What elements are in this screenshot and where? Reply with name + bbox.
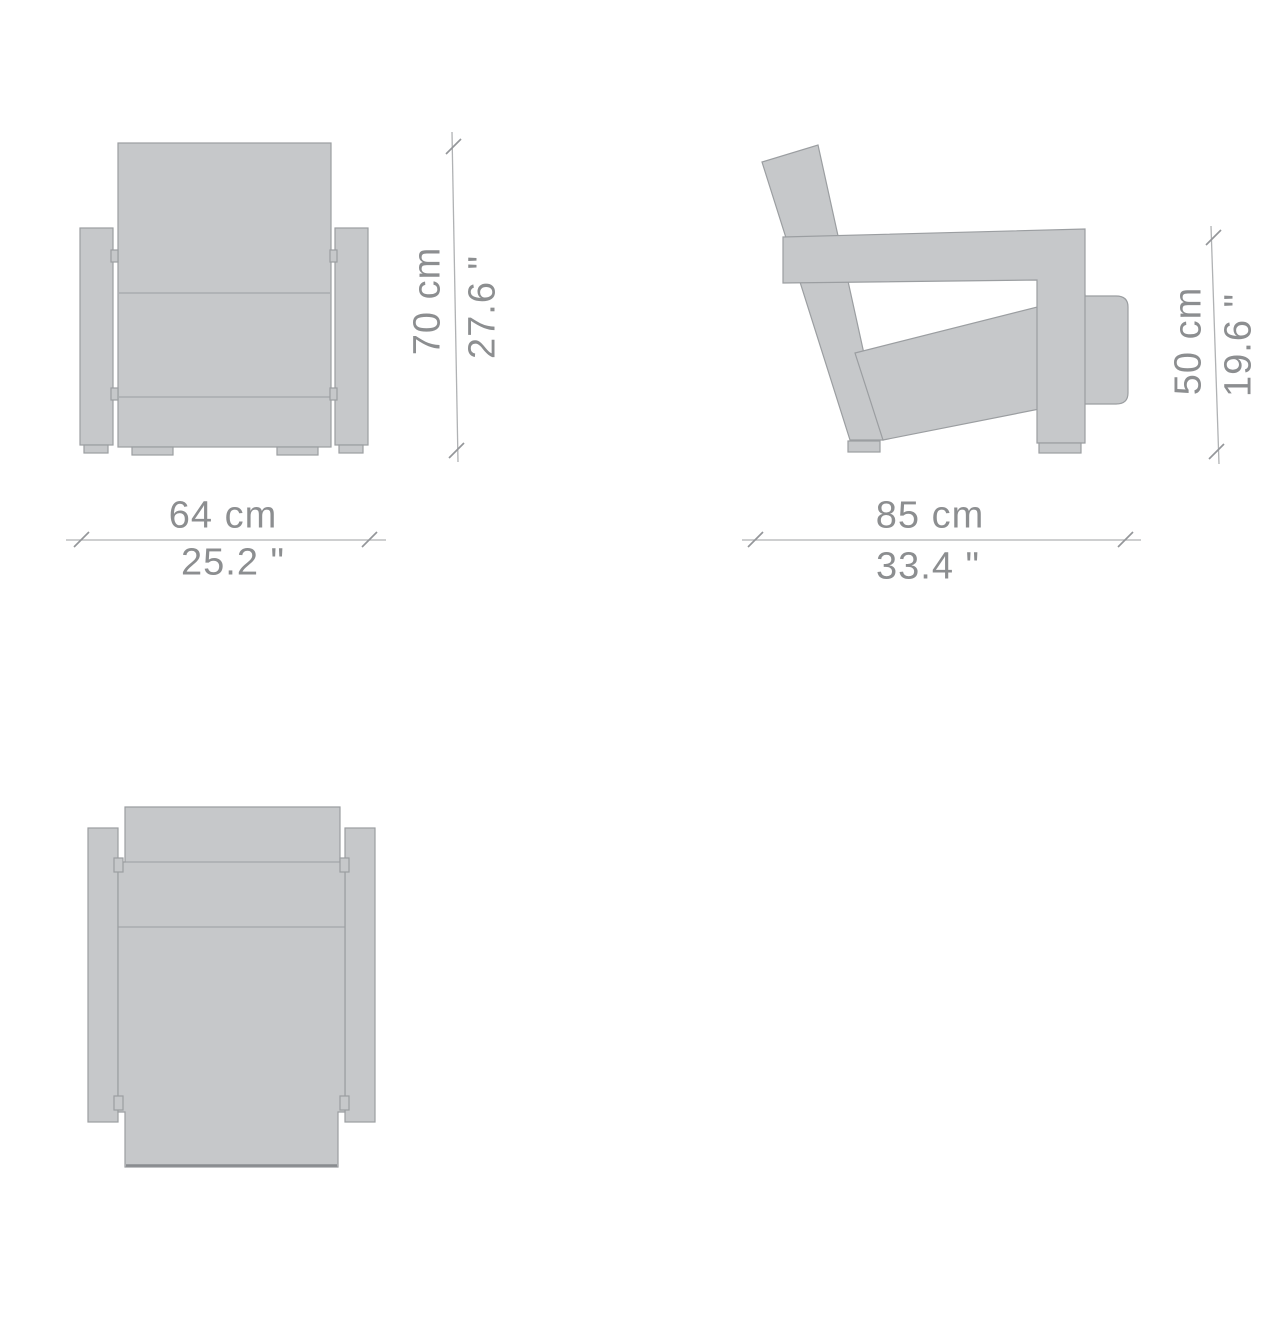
top-seat-body: [118, 807, 345, 1167]
front-right-arm-joint-lower: [330, 388, 337, 400]
top-left-joint-lower: [114, 1096, 123, 1110]
front-right-foot: [277, 447, 318, 455]
front-left-arm-foot: [84, 445, 108, 453]
top-left-joint-upper: [114, 858, 123, 872]
side-view: [762, 145, 1128, 453]
side-front-foot: [1039, 443, 1081, 453]
front-left-foot: [132, 447, 173, 455]
top-right-joint-upper: [340, 858, 349, 872]
side-back-foot: [848, 441, 880, 452]
front-right-arm-foot: [339, 445, 363, 453]
front-height-dim-line: [452, 132, 458, 462]
front-width-label-cm: 64 cm: [169, 495, 277, 538]
side-height-label-cm: 50 cm: [1168, 287, 1211, 395]
front-right-arm-joint-upper: [330, 250, 337, 262]
front-left-arm-joint-lower: [111, 388, 118, 400]
top-view: [88, 807, 375, 1167]
side-height-label-inch: 19.6 ": [1218, 293, 1261, 397]
front-right-arm: [335, 228, 368, 445]
chair-views-drawing: [0, 0, 1280, 1336]
top-right-joint-lower: [340, 1096, 349, 1110]
side-height-tick-top: [1206, 230, 1221, 245]
front-view: [80, 143, 368, 455]
side-height-tick-bottom: [1209, 444, 1224, 459]
front-left-arm: [80, 228, 113, 445]
front-height-label-inch: 27.6 ": [462, 255, 505, 359]
side-back-strip: [762, 145, 883, 440]
front-backrest-body: [118, 143, 331, 447]
front-height-label-cm: 70 cm: [407, 247, 450, 355]
front-width-label-inch: 25.2 ": [181, 542, 285, 585]
front-height-tick-bottom: [449, 443, 464, 458]
technical-drawing-canvas: 70 cm 27.6 " 64 cm 25.2 " 50 cm 19.6 " 8…: [0, 0, 1280, 1336]
side-depth-label-cm: 85 cm: [876, 495, 984, 538]
side-seat-end-cap: [1084, 296, 1128, 404]
side-depth-label-inch: 33.4 ": [876, 546, 980, 589]
front-left-arm-joint-upper: [111, 250, 118, 262]
front-height-tick-top: [446, 139, 461, 154]
